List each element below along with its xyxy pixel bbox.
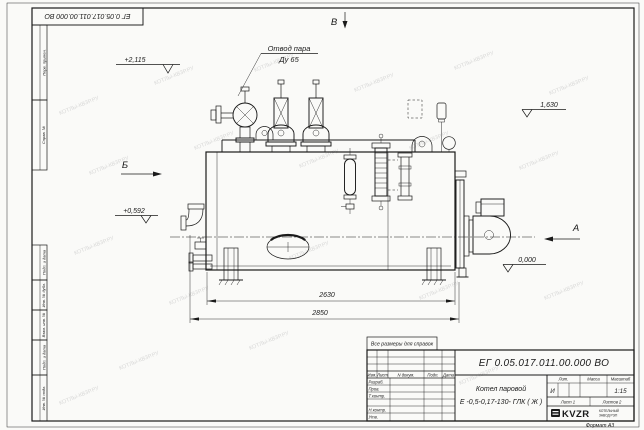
margin-label: Подп. и дата [42, 344, 47, 370]
logo-subtext-2: ЗАВОД РЭП [599, 414, 618, 418]
view-label-a: А [572, 223, 579, 234]
watermark-text: КОТЛЫ-КВЗР.РУ [59, 95, 101, 117]
margin-label: Взам. инв. № [41, 312, 46, 337]
watermark-text: КОТЛЫ-КВЗР.РУ [354, 72, 396, 94]
watermark-text: КОТЛЫ-КВЗР.РУ [249, 330, 291, 352]
watermark-text: КОТЛЫ-КВЗР.РУ [59, 385, 101, 407]
col-list: Лист [376, 372, 388, 377]
watermark-text: КОТЛЫ-КВЗР.РУ [169, 285, 211, 307]
scale-header: Масштаб [611, 377, 631, 382]
elevation-shell-top: 1,630 [522, 102, 566, 117]
lit-value: И [550, 388, 555, 395]
burner-assembly [455, 171, 511, 277]
lit-header: Лит. [558, 377, 569, 382]
col-doc: N докум. [398, 372, 415, 377]
title-block-headers: Изм. Лист N докум. Подп. Дата [368, 372, 455, 377]
margin-label: Подп. и дата [42, 249, 47, 275]
title-block: Все размеры для справок [367, 337, 634, 429]
dim-text: 2850 [311, 310, 328, 317]
dim-text: 2630 [318, 292, 335, 299]
margin-label: Инв. № дубл. [41, 283, 46, 308]
sight-glass [341, 148, 356, 214]
elevation-text: 0,000 [518, 257, 536, 264]
logo-mark [551, 409, 560, 417]
elevation-text: +0,592 [123, 208, 145, 215]
boiler-shell [206, 140, 455, 270]
watermark-text: КОТЛЫ-КВЗР.РУ [154, 65, 196, 87]
support-legs [219, 248, 446, 285]
format-note: Формат А3 [586, 423, 614, 429]
company-logo: KVZR КОТЕЛЬНЫЙ ЗАВОД РЭП [551, 409, 620, 420]
view-arrow-top: В [331, 12, 348, 29]
watermark-text: КОТЛЫ-КВЗР.РУ [194, 130, 236, 152]
view-label-v: В [331, 17, 338, 28]
elevation-valve-top: +2,115 [116, 57, 180, 73]
reference-note: Все размеры для справок [371, 342, 434, 348]
sheet-number: Лист 1 [560, 400, 575, 405]
top-stamp: ЕГ 0.05.017.011.00.000 ВО [32, 8, 143, 25]
col-izm: Изм. [368, 372, 377, 377]
view-arrow-left: Б [121, 160, 162, 177]
view-label-b: Б [122, 160, 128, 171]
col-date: Дата [442, 372, 455, 377]
drawing-sheet: КОТЛЫ-КВЗР.РУ КОТЛЫ-КВЗР.РУ КОТЛЫ-КВЗР.Р… [0, 0, 644, 430]
title-block-right: Лит. Масса Масштаб И 1:15 Лист 1 Листов … [550, 377, 631, 405]
col-sign: Подп. [427, 372, 438, 377]
steam-outlet-callout: Отвод пара Ду 65 [238, 44, 318, 96]
role-ncontrol: Н.контр. [369, 407, 387, 412]
watermarks: КОТЛЫ-КВЗР.РУ КОТЛЫ-КВЗР.РУ КОТЛЫ-КВЗР.Р… [59, 50, 591, 407]
role-developed: Разраб. [369, 379, 384, 384]
watermark-text: КОТЛЫ-КВЗР.РУ [419, 280, 461, 302]
safety-valve-1 [266, 80, 296, 152]
manhole [267, 235, 309, 259]
sensor-cylinder [437, 103, 446, 152]
margin-label: Перв. примен. [42, 49, 47, 76]
margin-label: Инв. № подл. [41, 386, 46, 411]
watermark-text: КОТЛЫ-КВЗР.РУ [544, 280, 586, 302]
margin-columns: Перв. примен. Справ. № Подп. и дата Инв.… [32, 25, 47, 421]
callout-line1: Отвод пара [268, 44, 311, 53]
watermark-text: КОТЛЫ-КВЗР.РУ [519, 150, 561, 172]
mass-header: Масса [587, 377, 600, 382]
scale-value: 1:15 [614, 388, 627, 395]
elevation-burner-axis: +0,592 [115, 208, 158, 223]
feedwater-elbow [181, 204, 204, 230]
product-name-line2: Е -0,5-0,17-130- ГЛК ( Ж ) [460, 399, 542, 406]
product-name-line1: Котел паровой [476, 385, 526, 393]
water-level-gauge [372, 134, 390, 210]
view-arrow-right: А [544, 223, 580, 242]
sheets-total: Листов 2 [602, 400, 622, 405]
top-stamp-text: ЕГ 0.05.017.011.00.000 ВО [44, 12, 131, 19]
margin-label: Справ. № [41, 125, 46, 144]
role-approved: Утв. [369, 415, 379, 420]
safety-valve-2 [301, 80, 331, 152]
manometer-loop [443, 137, 456, 152]
dimension-shell-length: 2630 [207, 272, 455, 305]
elevation-ground: 0,000 [503, 257, 546, 272]
flue-outline [408, 100, 422, 118]
gauge-column [388, 153, 412, 200]
logo-subtext-1: КОТЕЛЬНЫЙ [599, 409, 620, 413]
role-tcontrol: Т.контр. [369, 393, 386, 398]
watermark-text: КОТЛЫ-КВЗР.РУ [74, 235, 116, 257]
logo-text: KVZR [562, 409, 589, 420]
elevation-text: +2,115 [124, 57, 145, 64]
watermark-text: КОТЛЫ-КВЗР.РУ [549, 75, 591, 97]
watermark-text: КОТЛЫ-КВЗР.РУ [119, 350, 161, 372]
doc-number: ЕГ 0.05.017.011.00.000 ВО [479, 358, 609, 369]
boiler-drawing [170, 80, 535, 285]
side-nozzles [189, 238, 212, 271]
callout-line2: Ду 65 [278, 55, 299, 64]
role-checked: Пров. [369, 386, 380, 391]
elevation-text: 1,630 [540, 102, 558, 109]
title-block-roles: Разраб. Пров. Т.контр. Н.контр. Утв. [369, 379, 387, 419]
watermark-text: КОТЛЫ-КВЗР.РУ [454, 50, 496, 72]
